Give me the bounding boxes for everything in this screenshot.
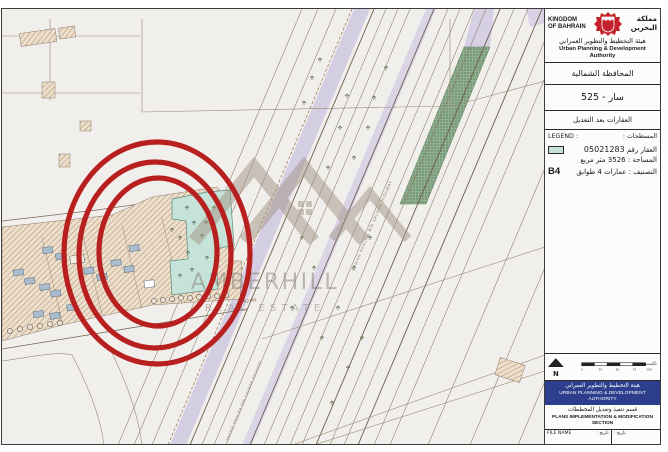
svg-text:100: 100 bbox=[646, 368, 652, 372]
svg-text:N: N bbox=[553, 370, 559, 377]
kingdom-name-en: KINGDOM OF BAHRAIN bbox=[548, 17, 586, 31]
legend-class-line: التصنيف : عمارات 4 طوابق B4 bbox=[548, 166, 657, 177]
sidebar-spacer bbox=[545, 183, 660, 353]
footer-authority-en: URBAN PLANNING & DEVELOPMENT AUTHORITY bbox=[546, 391, 659, 404]
block-title: سار - 525 bbox=[545, 85, 660, 111]
scale-row: N 0 25 50 75 bbox=[545, 354, 660, 381]
kingdom-name-ar: مملكة البحرين bbox=[631, 15, 657, 33]
authority-name-ar: هيئة التخطيط والتطوير العمراني bbox=[548, 38, 657, 46]
footer-authority-ar: هيئة التخطيط والتطوير العمراني bbox=[546, 383, 659, 390]
date-label-right: تاريخ : bbox=[614, 431, 626, 436]
bahrain-emblem-icon bbox=[594, 12, 622, 36]
legend-label-en: LEGEND : bbox=[548, 133, 578, 140]
footer-section-ar: قسم تنفيذ وتعديل المخططات bbox=[546, 407, 659, 414]
page: { "header": { "kingdom_line1": "KINGDOM"… bbox=[0, 0, 668, 452]
authority-band: هيئة التخطيط والتطوير العمراني URBAN PLA… bbox=[545, 381, 660, 405]
governorate-title: المحافظة الشمالية bbox=[545, 63, 660, 85]
footer-section-en: PLANS IMPLEMENTATION & MODIFICATION SECT… bbox=[546, 415, 659, 427]
sheet-footer: N 0 25 50 75 bbox=[545, 353, 660, 444]
svg-text:25: 25 bbox=[598, 368, 602, 372]
class-code: B4 bbox=[548, 166, 560, 177]
sheet-subtitle: العقارات بعد التعديل bbox=[545, 111, 660, 130]
title-block-sidebar: KINGDOM OF BAHRAIN مملكة البحرين هيئة ال… bbox=[544, 9, 660, 444]
class-label: التصنيف : عمارات 4 طوابق bbox=[576, 168, 657, 176]
north-arrow-icon: N bbox=[547, 357, 565, 377]
property-color-swatch bbox=[548, 146, 564, 154]
legend-label-ar: : المسطحات bbox=[623, 133, 657, 140]
sheet-header: KINGDOM OF BAHRAIN مملكة البحرين هيئة ال… bbox=[545, 9, 660, 63]
legend-area-line: المساحة : 3526 متر مربع bbox=[548, 156, 657, 164]
plan-sheet: R2142 SHAIKH KHALIFA BIN SALMAN HIGHWAY … bbox=[1, 8, 661, 445]
svg-text:75: 75 bbox=[632, 368, 636, 372]
property-number: 05021283 bbox=[584, 145, 625, 154]
scale-unit: متر bbox=[651, 360, 656, 364]
legend-header: LEGEND : : المسطحات bbox=[545, 130, 660, 141]
authority-name-en: Urban Planning & Development Authority bbox=[548, 46, 657, 60]
scale-bar: 0 25 50 75 100 متر bbox=[568, 358, 658, 376]
date-label-left: تاريخ : bbox=[597, 431, 609, 436]
footer-info-row: FILE NAME تاريخ : تاريخ : bbox=[545, 430, 660, 444]
property-label: العقار رقم bbox=[627, 146, 657, 154]
cadastral-map: R2142 SHAIKH KHALIFA BIN SALMAN HIGHWAY … bbox=[2, 9, 544, 444]
legend-property-line: العقار رقم 05021283 bbox=[548, 145, 657, 154]
map-area: R2142 SHAIKH KHALIFA BIN SALMAN HIGHWAY … bbox=[2, 9, 544, 444]
svg-text:50: 50 bbox=[615, 368, 619, 372]
legend-body: العقار رقم 05021283 المساحة : 3526 متر م… bbox=[545, 141, 660, 183]
section-band: قسم تنفيذ وتعديل المخططات PLANS IMPLEMEN… bbox=[545, 405, 660, 430]
file-name-label: FILE NAME bbox=[547, 431, 571, 436]
svg-text:0: 0 bbox=[580, 368, 582, 372]
watermark-subtitle: REAL ESTATE bbox=[205, 303, 325, 314]
